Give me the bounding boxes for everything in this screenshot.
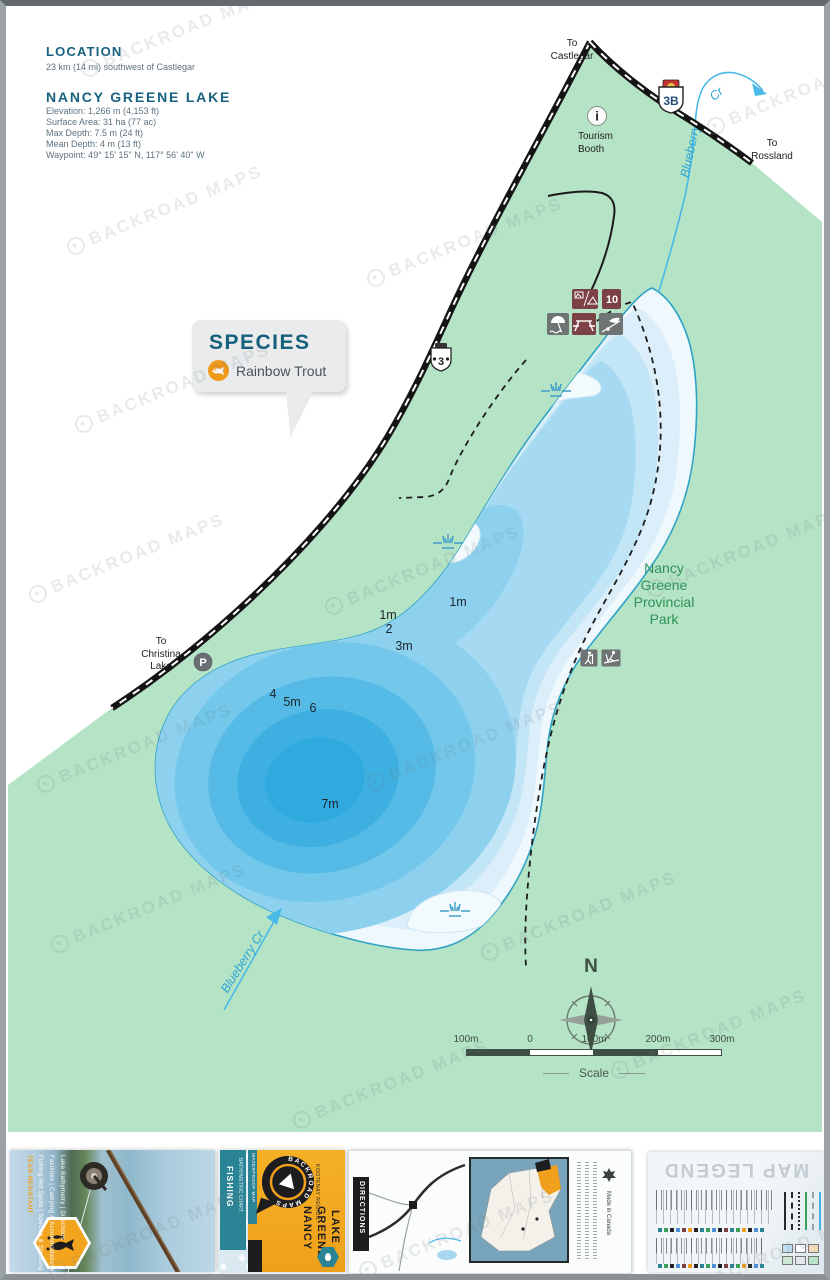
label-to-castlegar: To Castlegar xyxy=(540,38,604,63)
cover-title-line: NANCY xyxy=(301,1206,313,1250)
legend-swatch xyxy=(795,1256,806,1265)
legend-line-sample xyxy=(791,1192,793,1230)
highway-3b-shield: 3B xyxy=(659,80,683,113)
scale-tick: 100m xyxy=(581,1034,606,1045)
creek-arrowhead xyxy=(752,83,767,96)
scale-bar: 100m 0 100m 200m 300m Scale xyxy=(466,1034,722,1086)
location-text: 23 km (14 mi) southwest of Castlegar xyxy=(46,62,231,72)
svg-text:i: i xyxy=(595,109,599,124)
callout-tail xyxy=(286,387,321,438)
stat-waypoint: Waypoint: 49° 15' 15" N, 117° 56' 40" W xyxy=(46,150,231,160)
fishing-banner: FISHING BATHYMETRIC CHART xyxy=(220,1150,246,1250)
banner-fishing: FISHING xyxy=(225,1166,235,1207)
scale-segments xyxy=(466,1049,722,1056)
scale-tick: 300m xyxy=(709,1034,734,1045)
scale-tick: 100m xyxy=(453,1034,478,1045)
legend-swatch xyxy=(782,1244,793,1253)
legend-line-sample xyxy=(798,1192,800,1230)
scale-tick: 0 xyxy=(527,1034,533,1045)
cover-back-panel: DIRECTIONS Made in Canada xyxy=(348,1150,632,1274)
stat-mean-depth: Mean Depth: 4 m (13 ft) xyxy=(46,139,231,149)
cover-tagline: TEAR-RESISTANT xyxy=(26,1155,32,1214)
cover-region: KOOTENAY REGION xyxy=(314,1164,320,1220)
label-provincial-park: Nancy Greene Provincial Park xyxy=(616,560,712,628)
stat-surface-area: Surface Area: 31 ha (77 ac) xyxy=(46,117,231,127)
campground-icon xyxy=(572,289,598,309)
beach-icon xyxy=(547,313,569,335)
legend-labels-row xyxy=(656,1238,766,1264)
directions-road-map xyxy=(369,1153,467,1271)
campsite-count-icon: 10 xyxy=(602,289,621,309)
copyright-text-column xyxy=(577,1161,581,1259)
boat-launch-icon xyxy=(599,313,623,335)
species-name: Rainbow Trout xyxy=(236,363,326,379)
fish-icon xyxy=(208,360,229,381)
legend-line-sample xyxy=(784,1192,786,1230)
depth-label: 4 xyxy=(270,687,277,701)
legend-line-sample xyxy=(812,1192,814,1230)
cover-front-panel: FISHING BATHYMETRIC CHART WATERPROOF MAP… xyxy=(218,1150,345,1272)
copyright-text-column xyxy=(585,1161,589,1259)
depth-label: 6 xyxy=(310,701,317,715)
legend-icons-row xyxy=(658,1228,662,1232)
legend-title: MAP LEGEND xyxy=(648,1158,824,1180)
compass-north-label: N xyxy=(571,956,611,978)
label-tourism-booth: Tourism Booth xyxy=(578,131,632,156)
map-info-header: LOCATION 23 km (14 mi) southwest of Cast… xyxy=(46,44,231,160)
stat-elevation: Elevation: 1,266 m (4,153 ft) xyxy=(46,106,231,116)
legend-swatch xyxy=(808,1256,819,1265)
directions-banner: DIRECTIONS xyxy=(353,1177,369,1251)
tourism-booth-icon: i xyxy=(588,107,607,126)
svg-text:P: P xyxy=(199,657,206,669)
scale-caption: Scale xyxy=(466,1066,722,1080)
legend-swatch xyxy=(808,1244,819,1253)
legend-line-sample xyxy=(819,1192,821,1230)
cover-feature: Lake Bathymetry | Directions xyxy=(59,1155,65,1240)
directions-label: DIRECTIONS xyxy=(358,1181,365,1234)
depth-label: 3m xyxy=(395,639,412,653)
cover-title-line: LAKE xyxy=(329,1210,341,1244)
legend-swatch xyxy=(795,1244,806,1253)
lake-title: NANCY GREENE LAKE xyxy=(46,89,231,105)
label-to-christina-lake: To Christina Lake xyxy=(128,636,194,674)
hiking-icon xyxy=(581,650,598,667)
made-in-canada: Made in Canada xyxy=(605,1191,611,1235)
backroad-maps-logo: BACKROAD MAPS xyxy=(262,1156,314,1208)
depth-label: 1m xyxy=(449,595,466,609)
cover-feature: Fishing Hot Spots | Species & Stocking xyxy=(37,1155,43,1270)
bc-province-inset xyxy=(469,1157,569,1263)
picnic-icon xyxy=(572,313,596,335)
map-legend-panel: MAP LEGEND xyxy=(648,1152,824,1272)
depth-label: 1m xyxy=(379,608,396,622)
label-to-rossland: To Rossland xyxy=(740,138,804,163)
species-callout: SPECIES Rainbow Trout xyxy=(192,320,346,392)
location-title: LOCATION xyxy=(46,44,231,59)
svg-text:10: 10 xyxy=(606,294,618,306)
banner-bathymetric: BATHYMETRIC CHART xyxy=(237,1158,243,1212)
copyright-text-column xyxy=(593,1161,597,1259)
legend-line-sample xyxy=(805,1192,807,1230)
stat-max-depth: Max Depth: 7.5 m (24 ft) xyxy=(46,128,231,138)
depth-label: 7m xyxy=(321,797,338,811)
legend-swatch xyxy=(782,1256,793,1265)
cover-black-tab xyxy=(248,1240,262,1272)
depth-label: 5m xyxy=(283,695,300,709)
depth-label: 2 xyxy=(386,622,393,636)
scale-tick: 200m xyxy=(645,1034,670,1045)
legend-icons-row xyxy=(658,1264,662,1268)
species-title: SPECIES xyxy=(192,320,346,355)
cover-feature: Facilities | Camping & Accommodations xyxy=(48,1155,54,1271)
svg-text:3: 3 xyxy=(438,356,444,368)
creek-label-cr: Cr xyxy=(707,84,727,104)
svg-text:3B: 3B xyxy=(663,94,679,108)
ribbon-text: WATERPROOF MAP xyxy=(251,1153,256,1203)
parking-icon: P xyxy=(194,653,212,671)
maple-leaf-icon xyxy=(601,1167,617,1183)
cover-photo-panel: TEAR-RESISTANT Fishing Hot Spots | Speci… xyxy=(10,1150,215,1272)
ski-icon xyxy=(602,650,621,667)
map-page: Blueberry Cr Blueberry Cr 3B 3 xyxy=(0,0,830,1280)
legend-labels-row xyxy=(656,1190,774,1224)
